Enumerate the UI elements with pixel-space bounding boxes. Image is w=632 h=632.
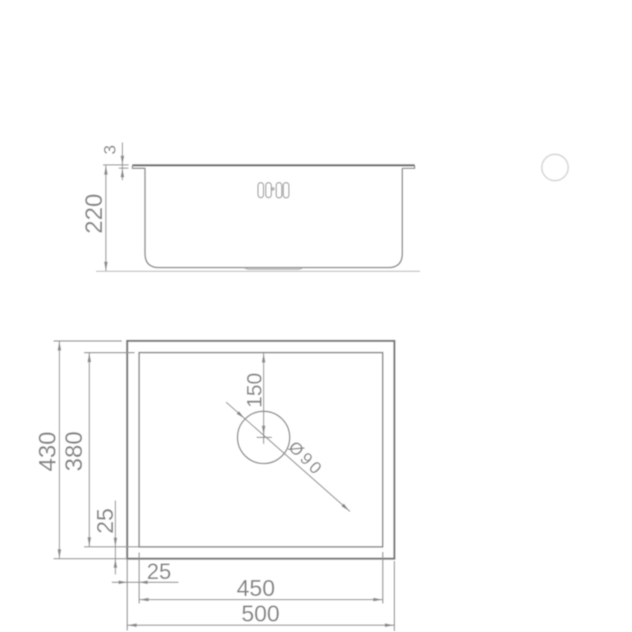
svg-text:450: 450	[237, 575, 275, 601]
svg-text:25: 25	[147, 559, 171, 584]
svg-text:430: 430	[35, 431, 62, 471]
svg-text:3: 3	[100, 145, 119, 154]
svg-text:150: 150	[243, 373, 266, 408]
svg-text:220: 220	[81, 194, 108, 234]
svg-text:25: 25	[92, 508, 118, 534]
svg-text:500: 500	[241, 600, 279, 626]
svg-text:380: 380	[61, 431, 88, 471]
